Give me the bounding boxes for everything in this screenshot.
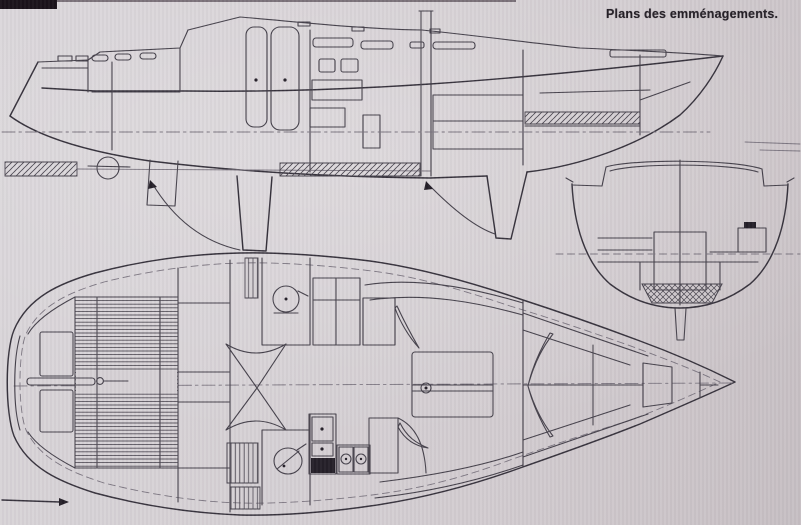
vberth-cushion-hatch xyxy=(525,112,640,124)
propeller xyxy=(88,157,130,179)
sole-hatch-mid xyxy=(280,163,420,176)
profile-view xyxy=(2,11,723,251)
section-interior xyxy=(598,222,766,290)
profile-sheer-line xyxy=(42,56,723,91)
port-settee-lines xyxy=(365,282,523,315)
stern-locker xyxy=(40,390,73,432)
leader-arrowhead xyxy=(59,498,69,506)
slatted-seat xyxy=(227,443,258,483)
oven-door xyxy=(311,458,335,473)
centreboard xyxy=(148,176,272,251)
toilet-pump-handle xyxy=(298,291,308,296)
slatted-step xyxy=(245,258,258,298)
door-handle xyxy=(254,78,257,81)
port-lockers xyxy=(313,278,395,345)
plan-view xyxy=(2,253,735,515)
vberth-infill xyxy=(643,363,672,407)
cushion-wedge xyxy=(528,333,553,386)
door-handle xyxy=(283,78,286,81)
section-keel-stub xyxy=(675,308,686,340)
section-view xyxy=(556,142,800,340)
boat-plans-drawing xyxy=(0,0,801,525)
leader-line xyxy=(2,498,69,506)
slatted-seat xyxy=(230,487,260,509)
profile-aft-deck xyxy=(38,48,180,92)
cushion-wedge xyxy=(395,306,419,348)
galley xyxy=(262,414,426,505)
aft-bulkheads xyxy=(178,260,230,512)
profile-interior xyxy=(77,30,690,172)
arc-arrowhead xyxy=(424,181,433,190)
stern-inner-arc xyxy=(15,336,20,430)
stern-locker xyxy=(40,332,73,376)
arc-arrowhead xyxy=(148,180,157,189)
cockpit-coaming xyxy=(28,297,75,468)
locker-latch xyxy=(744,222,756,228)
cushion-wedge xyxy=(398,423,428,448)
keel-stub xyxy=(424,172,527,239)
head-compartment xyxy=(262,258,310,345)
profile-transom xyxy=(10,62,38,116)
mast xyxy=(419,11,433,176)
scanned-page: Plans des emménagements. xyxy=(0,0,801,525)
sole-hatch-aft xyxy=(5,162,77,176)
icebox-counter xyxy=(369,418,398,473)
cushion-wedge xyxy=(528,386,553,437)
cabin-windows xyxy=(313,38,666,72)
reference-lines xyxy=(745,142,800,151)
section-cabin-roof xyxy=(606,161,762,172)
companionway-doors xyxy=(246,27,299,130)
coaming-portlights xyxy=(92,53,156,61)
companionway-steps xyxy=(226,344,286,430)
bilge-hatch xyxy=(642,284,722,303)
